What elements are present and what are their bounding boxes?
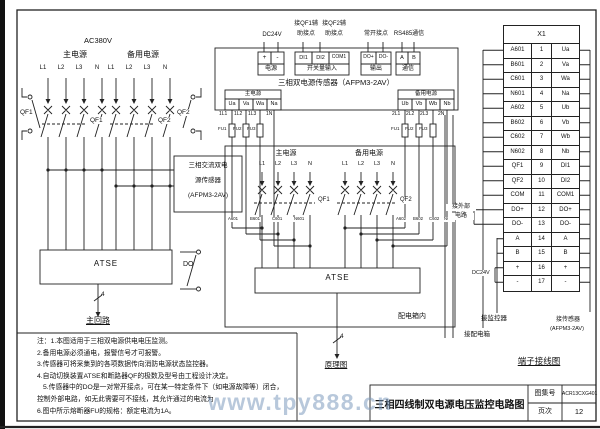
terminal-wire-id: A [504,233,532,247]
strip-backup-header: 备用电源 [398,91,454,97]
note-line: 注：1.本图适用于三相双电源供电电压监测。 [22,336,294,348]
terminal-signal: DO- [552,218,579,232]
terminal-di1: DI1 [295,55,312,61]
middle-diagram-lines [215,42,458,358]
terminal-number: 8 [532,146,552,160]
tap-label: A602 [395,217,407,222]
terminal-wire-id: + [504,262,532,276]
terminal-signal: DI1 [552,160,579,174]
main-circuit-caption: 主回路 [76,317,120,326]
terminal-number: 9 [532,160,552,174]
wire-label: 2L1 [392,112,400,118]
terminal-signal: Vb [552,117,579,131]
external-circuit-label: 电路 [448,213,474,220]
phase-label: L3 [369,161,385,167]
page-number-value: 12 [562,403,596,421]
ann-qf1-aux: 助接点 [293,31,319,38]
table-row: - 17 - [504,276,579,291]
distbox-connection-label: 接配电箱 [464,331,490,338]
strip-cell: Ub [398,101,412,107]
fuse-label: FU2 [405,127,414,132]
left-sensor-name: 源传感器 [175,177,241,184]
strip-cell: Va [239,101,253,107]
strip-cell: Wa [253,101,267,107]
terminal-wire-id: DO+ [504,204,532,218]
backup-power-label: 备用电源 [121,51,165,60]
wire-label: 1N [266,112,272,118]
note-line: 4.自动切换装置ATSE和断路器QF的极数及型号由工程设计决定。 [22,371,294,383]
terminal-signal: Wb [552,131,579,145]
terminal-signal: - [552,276,579,291]
terminal-signal: Na [552,88,579,102]
wire-label: 1L1 [219,112,227,118]
table-row: QF2 10 DI2 [504,175,579,190]
strip-cell: Wb [426,101,440,107]
schematic-caption: 原理图 [314,361,358,369]
sensor-connection-label: (AFPM3-2AV) [538,326,596,332]
do-label: DO [183,261,194,269]
terminal-number: 12 [532,204,552,218]
phase-label: L3 [73,65,85,72]
terminal-table-body: A601 1 Ua B601 2 Va C601 3 Wa N601 4 Na [504,44,579,291]
qf1-aux-label: QF1 [19,109,34,116]
fuse-label: FU3 [247,127,256,132]
phase-label: N [302,161,318,167]
note-line: 3.传感器可将采集到的各项数据传向消防电源状态监控器。 [22,359,294,371]
table-row: COM 11 COM1 [504,189,579,204]
external-circuit-label: 接外部 [446,204,476,211]
do-contact-symbol [180,250,201,291]
fuse-label: FU1 [391,127,400,132]
tap-label: C602 [428,217,440,222]
page-number-label: 页次 [528,403,562,421]
ann-rs485: RS485通信 [391,31,427,38]
wire-count: 4 [101,291,105,298]
strip-cell: Nb [440,101,454,107]
strip-cell: Na [267,101,281,107]
terminal-number: 1 [532,44,552,58]
ann-dc24v: DC24V [258,32,286,39]
terminal-wire-id: QF2 [504,175,532,189]
phase-label: L2 [123,65,135,72]
strip-main-header: 主电源 [225,91,281,97]
tap-label: N601 [293,217,305,222]
drawing-page: AC380V 主电源 备用电源 L1 L2 L3 N L1 L2 L3 N QF… [0,0,600,429]
left-sensor-name: 三相交流双电 [175,162,241,169]
terminal-signal: Ub [552,102,579,116]
table-row: C601 3 Wa [504,73,579,88]
atlas-number-label: 图集号 [528,385,562,403]
terminal-com1: COM1 [329,55,349,61]
phase-label: L1 [105,65,117,72]
terminal-number: 17 [532,276,552,291]
terminal-do-plus: DO+ [361,55,376,61]
qf2-label: QF2 [399,197,413,204]
ann-normally-open: 常开接点 [360,31,392,38]
terminal-do-minus: DO- [376,55,391,61]
terminal-wire-id: - [504,276,532,291]
box-main-label: 主电源 [264,150,308,158]
group-output: 输出 [361,66,391,73]
terminal-plus: + [258,54,271,61]
terminal-number: 3 [532,73,552,87]
terminal-wire-id: B602 [504,117,532,131]
qf1-breaker-label: QF1 [89,117,104,124]
wire-label: 2N [438,112,444,118]
terminal-wire-id: QF1 [504,160,532,174]
terminal-signal: + [552,262,579,276]
middle-sensor-title: 三相双电源传感器（AFPM3-2AV） [246,79,426,87]
wire-label: 1L3 [248,112,256,118]
wire-count: 4 [340,333,344,340]
terminal-table-x1: X1 A601 1 Ua B601 2 Va C601 3 Wa N601 [503,25,580,292]
distribution-box-label: 配电箱内 [398,313,426,321]
phase-label: L3 [141,65,153,72]
table-row: B 15 B [504,247,579,262]
terminal-number: 5 [532,102,552,116]
group-power: 电源 [258,66,284,73]
drawing-title: 三相四线制双电源电压监控电路图 [371,385,528,421]
terminal-number: 13 [532,218,552,232]
qf2-breaker-label: QF2 [157,117,172,124]
terminal-wire-id: DO- [504,218,532,232]
monitor-connection-label: 接监控器 [481,315,507,322]
phase-label: N [159,65,171,72]
ann-qf2-aux: 接QF2辅 [319,21,349,28]
phase-label: L3 [286,161,302,167]
terminal-signal: A [552,233,579,247]
terminal-wire-id: C601 [504,73,532,87]
terminal-number: 7 [532,131,552,145]
tap-label: C601 [271,217,283,222]
tap-label: B601 [249,217,261,222]
terminal-wire-id: C602 [504,131,532,145]
terminal-wire-id: B [504,247,532,261]
terminal-wire-id: COM [504,189,532,203]
terminal-number: 11 [532,189,552,203]
atse-label-middle: ATSE [255,274,420,283]
terminal-signal: B [552,247,579,261]
table-row: DO+ 12 DO+ [504,204,579,219]
atlas-number-value: ACR13CXG401 [562,385,596,403]
qf1-label: QF1 [317,197,331,204]
wire-label: 2L3 [420,112,428,118]
terminal-signal: COM1 [552,189,579,203]
terminal-number: 4 [532,88,552,102]
watermark-text: www.tpy888.cn [208,389,393,416]
phase-label: L1 [37,65,49,72]
terminal-signal: Va [552,59,579,73]
terminal-minus: - [271,54,284,61]
main-power-label: 主电源 [53,51,97,60]
terminal-a: A [396,55,408,61]
note-line: 2.备用电源必须通电，报警信号才可报警。 [22,348,294,360]
terminal-wire-id: A602 [504,102,532,116]
fuse-label: FU2 [233,127,242,132]
phase-label: L2 [270,161,286,167]
tap-label: B602 [412,217,424,222]
terminal-number: 16 [532,262,552,276]
wire-label: 2L2 [406,112,414,118]
voltage-label: AC380V [75,37,121,45]
terminal-b: B [408,55,420,61]
terminal-number: 6 [532,117,552,131]
dc24v-side-label: DC24V [471,270,491,276]
ann-qf1-aux: 接QF1辅 [291,21,321,28]
terminal-signal: Ua [552,44,579,58]
phase-label: L2 [55,65,67,72]
table-row: + 16 + [504,262,579,277]
terminal-wire-id: N601 [504,88,532,102]
group-comm: 通信 [396,66,420,73]
terminal-number: 2 [532,59,552,73]
table-row: QF1 9 DI1 [504,160,579,175]
strip-cell: Ua [225,101,239,107]
table-row: N602 8 Nb [504,146,579,161]
left-sensor-name: (AFPM3-2AV) [175,192,241,199]
terminal-signal: DO+ [552,204,579,218]
strip-cell: Vb [412,101,426,107]
box-backup-label: 备用电源 [347,150,391,158]
table-row: C602 7 Wb [504,131,579,146]
terminal-diagram-caption: 端子接线图 [512,357,566,366]
phase-label: L2 [353,161,369,167]
atse-label: ATSE [40,260,172,269]
tap-label: A601 [227,217,239,222]
terminal-di2: DI2 [312,55,329,61]
terminal-signal: Wa [552,73,579,87]
qf2-aux-label: QF2 [176,109,191,116]
terminal-number: 10 [532,175,552,189]
wire-label: 1L2 [234,112,242,118]
fuse-label: FU1 [218,127,227,132]
sensor-connection-label: 接传感器 [542,317,594,324]
table-row: B601 2 Va [504,59,579,74]
terminal-number: 14 [532,233,552,247]
terminal-signal: DI2 [552,175,579,189]
terminal-number: 15 [532,247,552,261]
phase-label: L1 [337,161,353,167]
table-row: A 14 A [504,233,579,248]
phase-label: L1 [254,161,270,167]
table-row: DO- 13 DO- [504,218,579,233]
ann-qf2-aux: 助接点 [321,31,347,38]
table-row: A602 5 Ub [504,102,579,117]
terminal-signal: Nb [552,146,579,160]
fuse-label: FU3 [419,127,428,132]
terminal-wire-id: A601 [504,44,532,58]
binding-bar [0,0,5,429]
phase-label: N [91,65,103,72]
terminal-wire-id: N602 [504,146,532,160]
table-row: N601 4 Na [504,88,579,103]
table-row: A601 1 Ua [504,44,579,59]
table-row: B602 6 Vb [504,117,579,132]
group-di: 开关量输入 [295,66,349,73]
distribution-box [225,146,455,327]
terminal-table-title: X1 [504,26,579,44]
terminal-wire-id: B601 [504,59,532,73]
phase-label: N [385,161,401,167]
